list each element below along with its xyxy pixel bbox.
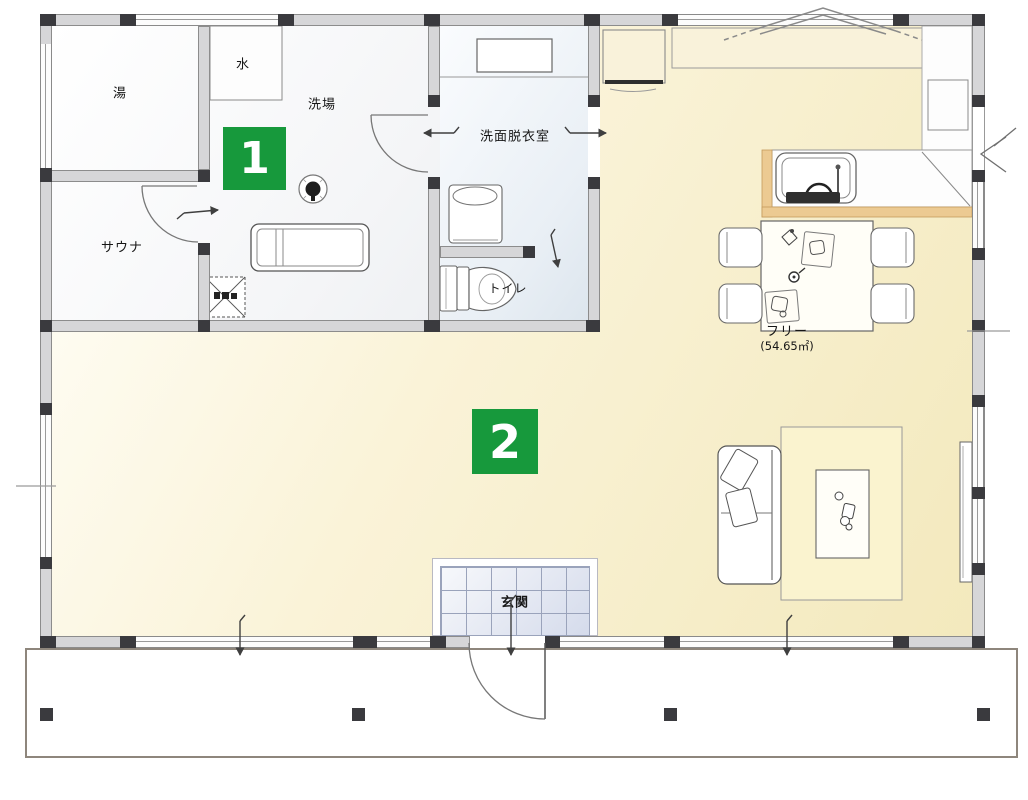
- label-free-space: フリー: [766, 321, 808, 340]
- wall-segment: [588, 177, 600, 332]
- wall-post: [120, 636, 136, 648]
- wall-post: [972, 14, 985, 26]
- window: [560, 636, 664, 648]
- window: [972, 499, 985, 563]
- wall-post: [278, 14, 294, 26]
- window: [136, 636, 353, 648]
- wall-post: [584, 14, 600, 26]
- wall-segment: [198, 243, 210, 332]
- window: [40, 415, 52, 557]
- wall-post: [353, 636, 377, 648]
- wall-post: [198, 320, 210, 332]
- label-water: 水: [236, 54, 250, 73]
- wall-post: [893, 636, 909, 648]
- window: [40, 44, 52, 168]
- wall-post: [40, 320, 52, 332]
- window: [680, 636, 893, 648]
- wall-post: [664, 636, 680, 648]
- wall-post: [40, 557, 52, 569]
- wall-post: [972, 170, 985, 182]
- wall-segment: [198, 26, 210, 170]
- wall-post: [972, 395, 985, 407]
- wall-post: [972, 95, 985, 107]
- wall-post: [424, 320, 440, 332]
- wall-post: [893, 14, 909, 26]
- wall-post: [523, 246, 535, 258]
- washroom-floor: [440, 26, 588, 320]
- wall-segment: [428, 177, 440, 332]
- wall-segment: [40, 320, 600, 332]
- porch-post: [977, 708, 990, 721]
- wall-post: [428, 177, 440, 189]
- label-free-space-area: (54.65㎡): [760, 338, 813, 354]
- wall-post: [545, 636, 560, 648]
- wall-segment: [588, 14, 600, 107]
- porch-post: [40, 708, 53, 721]
- window: [972, 407, 985, 487]
- wall-post: [972, 563, 985, 575]
- wall-post: [662, 14, 678, 26]
- wall-post: [428, 95, 440, 107]
- label-toilet: トイレ: [488, 280, 527, 297]
- badge-1: 1: [223, 127, 286, 190]
- porch-post: [352, 708, 365, 721]
- badge-2-number: 2: [489, 415, 521, 469]
- wall-post: [40, 636, 56, 648]
- wall-post: [424, 14, 440, 26]
- wall-post: [40, 168, 52, 182]
- badge-2: 2: [472, 409, 538, 474]
- window: [377, 636, 430, 648]
- floor-plan: 1 2 湯 水 洗場 サウナ 洗面脱衣室 トイレ フリー (54.65㎡) 玄関: [0, 0, 1028, 800]
- back-door: [972, 107, 985, 170]
- wall-post: [40, 403, 52, 415]
- wall-post: [588, 177, 600, 189]
- wall-post: [198, 243, 210, 255]
- wall-post: [40, 14, 56, 26]
- wall-post: [430, 636, 446, 648]
- label-sauna: サウナ: [101, 237, 143, 256]
- badge-1-number: 1: [239, 133, 270, 184]
- wall-post: [120, 14, 136, 26]
- wall-post: [972, 636, 985, 648]
- window: [972, 182, 985, 248]
- wall-post: [972, 487, 985, 499]
- porch: [25, 648, 1018, 758]
- wall-segment: [440, 246, 535, 258]
- label-washroom: 洗面脱衣室: [480, 126, 550, 145]
- wall-post: [588, 95, 600, 107]
- label-entrance: 玄関: [501, 592, 529, 611]
- window: [678, 14, 893, 26]
- wall-post: [198, 170, 210, 182]
- label-bath: 湯: [113, 83, 127, 102]
- label-wash-place: 洗場: [308, 94, 336, 113]
- wall-segment: [40, 170, 210, 182]
- wall-post: [586, 320, 600, 332]
- wall-post: [972, 320, 985, 332]
- wall-post: [972, 248, 985, 260]
- porch-post: [664, 708, 677, 721]
- window: [136, 14, 278, 26]
- back-door-swing-mark: [981, 128, 1016, 172]
